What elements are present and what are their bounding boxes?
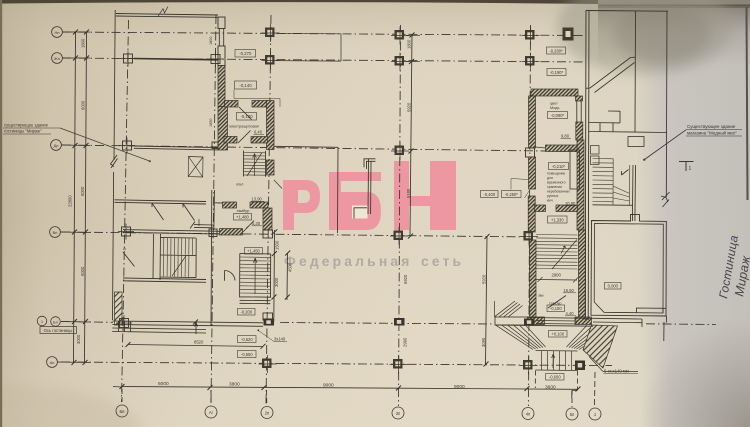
svg-text:Жл: Жл (54, 56, 61, 61)
svg-text:5920: 5920 (407, 102, 412, 112)
svg-text:4500: 4500 (288, 262, 293, 272)
svg-text:-0,620: -0,620 (241, 337, 253, 342)
svg-text:Существующее здание: Существующее здание (687, 124, 736, 129)
svg-text:5180: 5180 (406, 188, 411, 198)
svg-text:2900: 2900 (552, 273, 562, 278)
svg-text:5п: 5п (570, 412, 575, 417)
svg-text:13,90: 13,90 (252, 197, 263, 202)
svg-text:6000: 6000 (80, 266, 85, 276)
svg-text:неребованных: неребованных (547, 190, 570, 194)
svg-text:тамбур: тамбур (237, 208, 250, 213)
svg-text:Бв: Бв (120, 409, 126, 414)
svg-text:8520: 8520 (194, 340, 204, 345)
svg-text:-0,270: -0,270 (239, 51, 252, 56)
svg-text:6000: 6000 (81, 100, 86, 110)
svg-text:5920: 5920 (482, 274, 487, 284)
svg-text:16,50: 16,50 (564, 288, 575, 293)
svg-text:помещение: помещение (547, 172, 565, 176)
svg-text:6000: 6000 (158, 381, 169, 387)
svg-text:Модь: Модь (550, 106, 559, 110)
svg-text:6920: 6920 (403, 274, 408, 284)
svg-text:Федеральная: Федеральная (284, 254, 412, 269)
svg-text:электрощитовая: электрощитовая (229, 124, 259, 129)
svg-text:-0,600: -0,600 (549, 375, 561, 380)
svg-text:ручных: ручных (547, 194, 559, 198)
svg-text:Ось гостиницы: Ось гостиницы (44, 328, 73, 333)
svg-text:цвет: цвет (550, 102, 558, 106)
svg-text:22800: 22800 (68, 195, 73, 207)
svg-text:9,80: 9,80 (561, 134, 570, 139)
svg-text:5 ст.х140 мм: 5 ст.х140 мм (604, 369, 629, 374)
svg-text:Дп: Дп (54, 143, 59, 148)
svg-text:для: для (547, 176, 553, 180)
svg-text:гостиницы "Мираж": гостиницы "Мираж" (4, 129, 42, 134)
svg-text:Аг: Аг (209, 410, 214, 415)
svg-text:2990: 2990 (403, 337, 408, 347)
svg-text:+1,450: +1,450 (247, 249, 260, 254)
svg-text:-0,090*: -0,090* (551, 113, 565, 118)
svg-text:-0,190*: -0,190* (550, 70, 564, 75)
svg-text:1800: 1800 (407, 39, 412, 49)
svg-text:9000: 9000 (323, 383, 334, 389)
svg-text:5,30: 5,30 (252, 221, 261, 226)
svg-text:-0,200: -0,200 (240, 310, 252, 315)
svg-text:0,000: 0,000 (608, 284, 619, 289)
svg-text:сеть: сеть (421, 254, 464, 269)
svg-text:1800: 1800 (81, 38, 86, 48)
svg-text:1500: 1500 (275, 240, 280, 250)
svg-text:-0,210*: -0,210* (552, 164, 566, 169)
svg-text:Ап: Ап (50, 360, 55, 365)
svg-text:-0,650: -0,650 (241, 352, 253, 357)
svg-text:зв⌀: зв⌀ (538, 294, 545, 298)
svg-text:Бл: Бл (53, 319, 59, 324)
svg-text:6,40: 6,40 (254, 130, 263, 135)
svg-text:3800: 3800 (229, 382, 240, 388)
svg-text:4п: 4п (526, 412, 531, 417)
svg-text:+0,100: +0,100 (551, 332, 564, 337)
svg-text:-0,100: -0,100 (550, 306, 562, 311)
svg-text:1850: 1850 (209, 119, 213, 127)
svg-text:Вп: Вп (53, 230, 58, 235)
svg-text:10,80: 10,80 (565, 201, 576, 206)
svg-text:3п: 3п (396, 411, 401, 416)
svg-text:3х140: 3х140 (274, 337, 286, 342)
svg-text:4,40: 4,40 (566, 311, 575, 316)
svg-text:9000: 9000 (454, 384, 465, 390)
svg-text:-0,140: -0,140 (239, 83, 252, 88)
svg-text:-0,100: -0,100 (240, 114, 253, 119)
svg-text:+1,330: +1,330 (551, 217, 564, 222)
svg-text:6000: 6000 (80, 186, 85, 196)
svg-text:2п: 2п (265, 411, 270, 416)
svg-text:хранения: хранения (547, 185, 562, 189)
svg-text:-0,260*: -0,260* (549, 48, 563, 53)
svg-text:3600: 3600 (545, 385, 556, 391)
svg-text:существующее здание: существующее здание (4, 123, 49, 128)
svg-text:-0,250*: -0,250* (505, 192, 519, 197)
svg-text:Нп: Нп (54, 30, 59, 35)
svg-text:+1,480: +1,480 (236, 215, 249, 220)
svg-text:магазина "Модный мех": магазина "Модный мех" (687, 130, 737, 136)
svg-text:временного: временного (547, 181, 566, 185)
svg-text:1800: 1800 (209, 37, 213, 45)
svg-text:-0,400: -0,400 (483, 192, 495, 197)
svg-text:кюч: кюч (547, 199, 553, 203)
svg-text:3000: 3000 (274, 277, 279, 287)
svg-text:1: 1 (689, 166, 692, 172)
svg-text:3090: 3090 (481, 337, 486, 347)
svg-text:л/кл: л/кл (236, 182, 243, 187)
svg-text:3000: 3000 (76, 334, 81, 344)
